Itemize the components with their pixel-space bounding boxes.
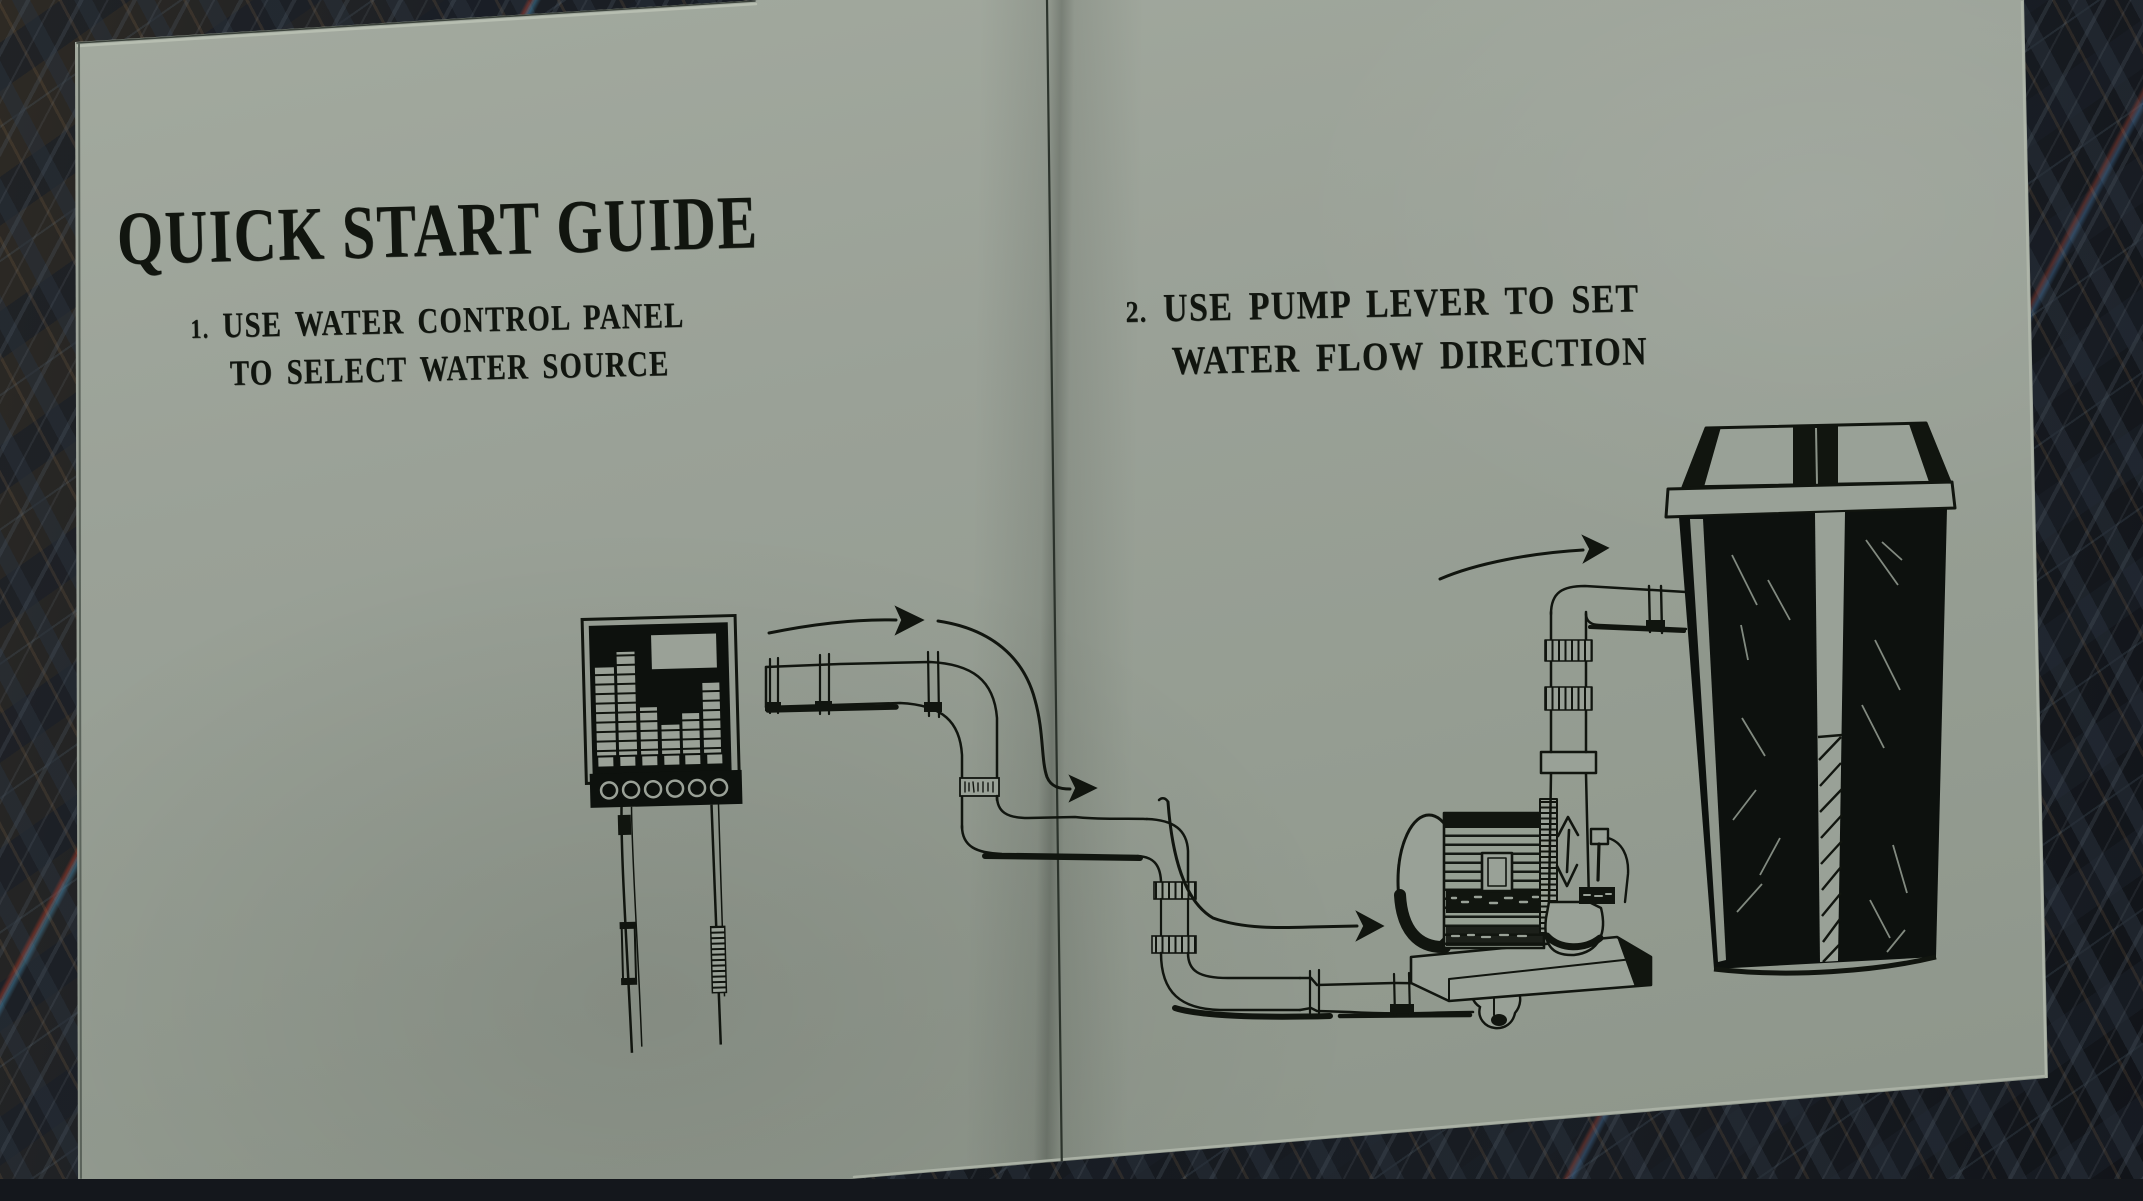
- flow-direction-up-down-arrow: [1557, 817, 1578, 886]
- pump-illustration: [1398, 586, 1686, 1001]
- water-tank-illustration: [1666, 423, 1955, 973]
- step-1-number: 1.: [190, 314, 210, 344]
- flow-arrow-to-pump: [1159, 798, 1383, 940]
- step-1-line-2: TO SELECT WATER SOURCE: [229, 345, 685, 391]
- flow-arrow-panel-to-pipe: [769, 607, 923, 634]
- water-control-panel-illustration: [582, 615, 749, 1053]
- quick-start-guide-book[interactable]: QUICK START GUIDE 1. USE WATER CONTROL P…: [0, 0, 2143, 1179]
- step-2-instruction: 2. USE PUMP LEVER TO SET WATER FLOW DIRE…: [1125, 278, 1648, 382]
- panel-screen: [651, 634, 717, 670]
- page-title: QUICK START GUIDE: [116, 184, 759, 277]
- step-2-number: 2.: [1125, 295, 1148, 329]
- panel-cables: [617, 804, 728, 1053]
- flow-arrow-to-tank: [1440, 536, 1608, 579]
- step-2-line-1: USE PUMP LEVER TO SET: [1163, 275, 1640, 330]
- step-1-instruction: 1. USE WATER CONTROL PANEL TO SELECT WAT…: [190, 297, 686, 392]
- step-2-line-2: WATER FLOW DIRECTION: [1171, 331, 1648, 381]
- guide-diagram: [0, 0, 2143, 1179]
- game-viewport: QUICK START GUIDE 1. USE WATER CONTROL P…: [0, 0, 2143, 1179]
